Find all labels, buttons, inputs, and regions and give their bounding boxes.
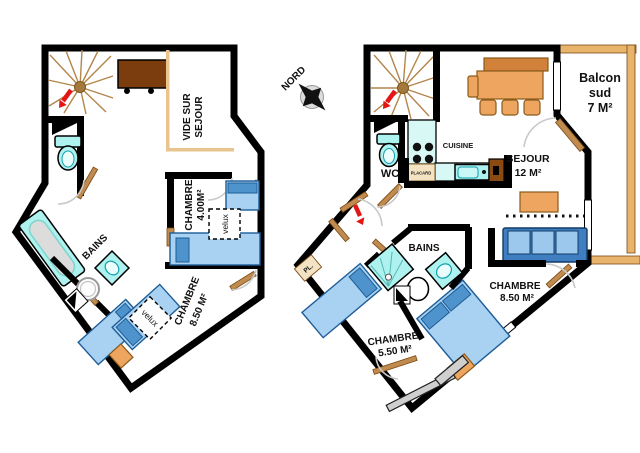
wall <box>165 172 232 179</box>
placard-label: PLACARD <box>411 171 431 176</box>
desk-knob <box>148 88 154 94</box>
wall <box>576 260 588 267</box>
wall <box>408 224 470 231</box>
dining-table <box>477 71 543 99</box>
stove-burner <box>425 143 433 151</box>
room-area-chambre4: 4.00M² <box>196 189 207 221</box>
wall <box>404 158 409 184</box>
chair <box>502 100 518 115</box>
compass-rose: NORD <box>280 65 336 121</box>
room-label-chambre85: CHAMBRE <box>489 281 540 292</box>
window <box>554 62 561 110</box>
chair <box>480 100 496 115</box>
stair-hub <box>398 83 409 94</box>
mezzanine-railing <box>166 148 234 152</box>
fridge <box>489 159 504 182</box>
room-area-chambre85: 8.50 M² <box>500 293 535 304</box>
stove-burner <box>413 155 421 163</box>
wall <box>433 48 440 122</box>
desk-knob <box>124 88 130 94</box>
main-floor-plan: Balcon sud 7 M² <box>294 45 640 411</box>
bench <box>484 58 548 71</box>
wall <box>167 172 174 228</box>
room-label-vide-sur-sejour: SEJOUR <box>194 96 205 138</box>
floor-plan-page: VIDE SUR SEJOUR velux CHAMBRE 4.00M² <box>0 0 640 453</box>
room-label-bains-main: BAINS <box>408 243 439 254</box>
chair <box>468 76 478 97</box>
desk <box>118 60 167 88</box>
wc-toilet <box>377 134 400 167</box>
coffee-table <box>520 192 558 212</box>
room-label-sejour: SEJOUR <box>506 153 550 165</box>
wall <box>465 227 472 269</box>
wall <box>488 260 546 267</box>
room-label-balcon: sud <box>589 86 611 100</box>
room-area-balcon: 7 M² <box>588 101 613 115</box>
room-label-balcon: Balcon <box>579 71 621 85</box>
room-label-wc: WC <box>381 168 399 180</box>
mezzanine-railing <box>166 50 170 150</box>
upper-floor-plan: VIDE SUR SEJOUR velux CHAMBRE 4.00M² <box>16 48 261 388</box>
wall <box>404 181 512 188</box>
stair-hub <box>75 82 86 93</box>
bed <box>226 181 259 210</box>
velux-label: velux <box>220 213 230 234</box>
room-label-vide-sur-sejour: VIDE SUR <box>182 93 193 141</box>
stove-burner <box>425 155 433 163</box>
kitchen-sink <box>455 165 489 181</box>
stove-burner <box>413 143 421 151</box>
room-area-sejour: 12 M² <box>515 167 542 179</box>
chair <box>524 100 540 115</box>
room-label-chambre4: CHAMBRE <box>184 179 195 230</box>
room-label-cuisine: CUISINE <box>443 141 473 150</box>
floor-plan-drawing: VIDE SUR SEJOUR velux CHAMBRE 4.00M² <box>0 0 640 453</box>
